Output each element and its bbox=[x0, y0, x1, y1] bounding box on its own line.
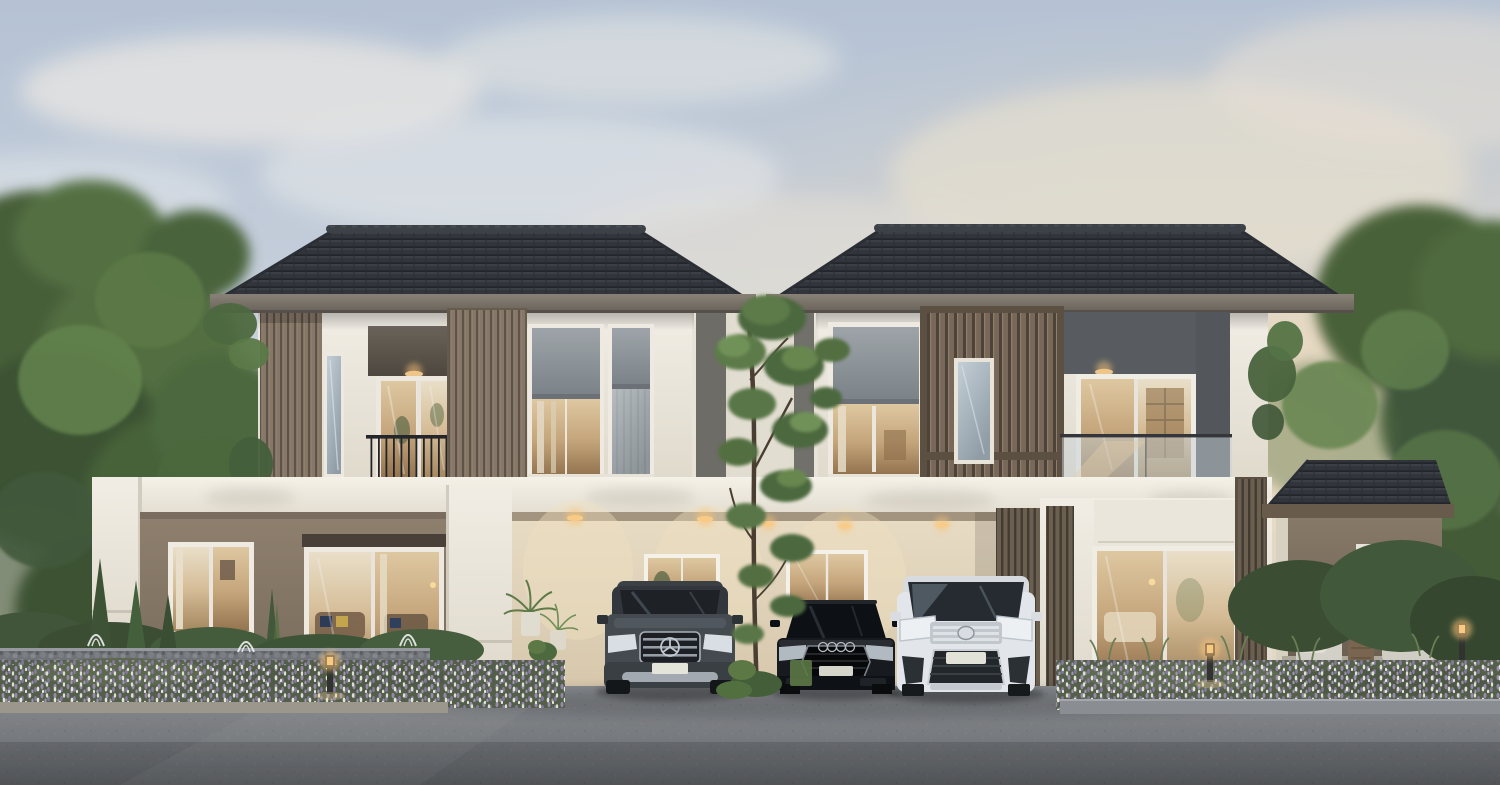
architectural-rendering bbox=[0, 0, 1500, 785]
dusk-tint bbox=[0, 0, 1500, 785]
scene-canvas bbox=[0, 0, 1500, 785]
